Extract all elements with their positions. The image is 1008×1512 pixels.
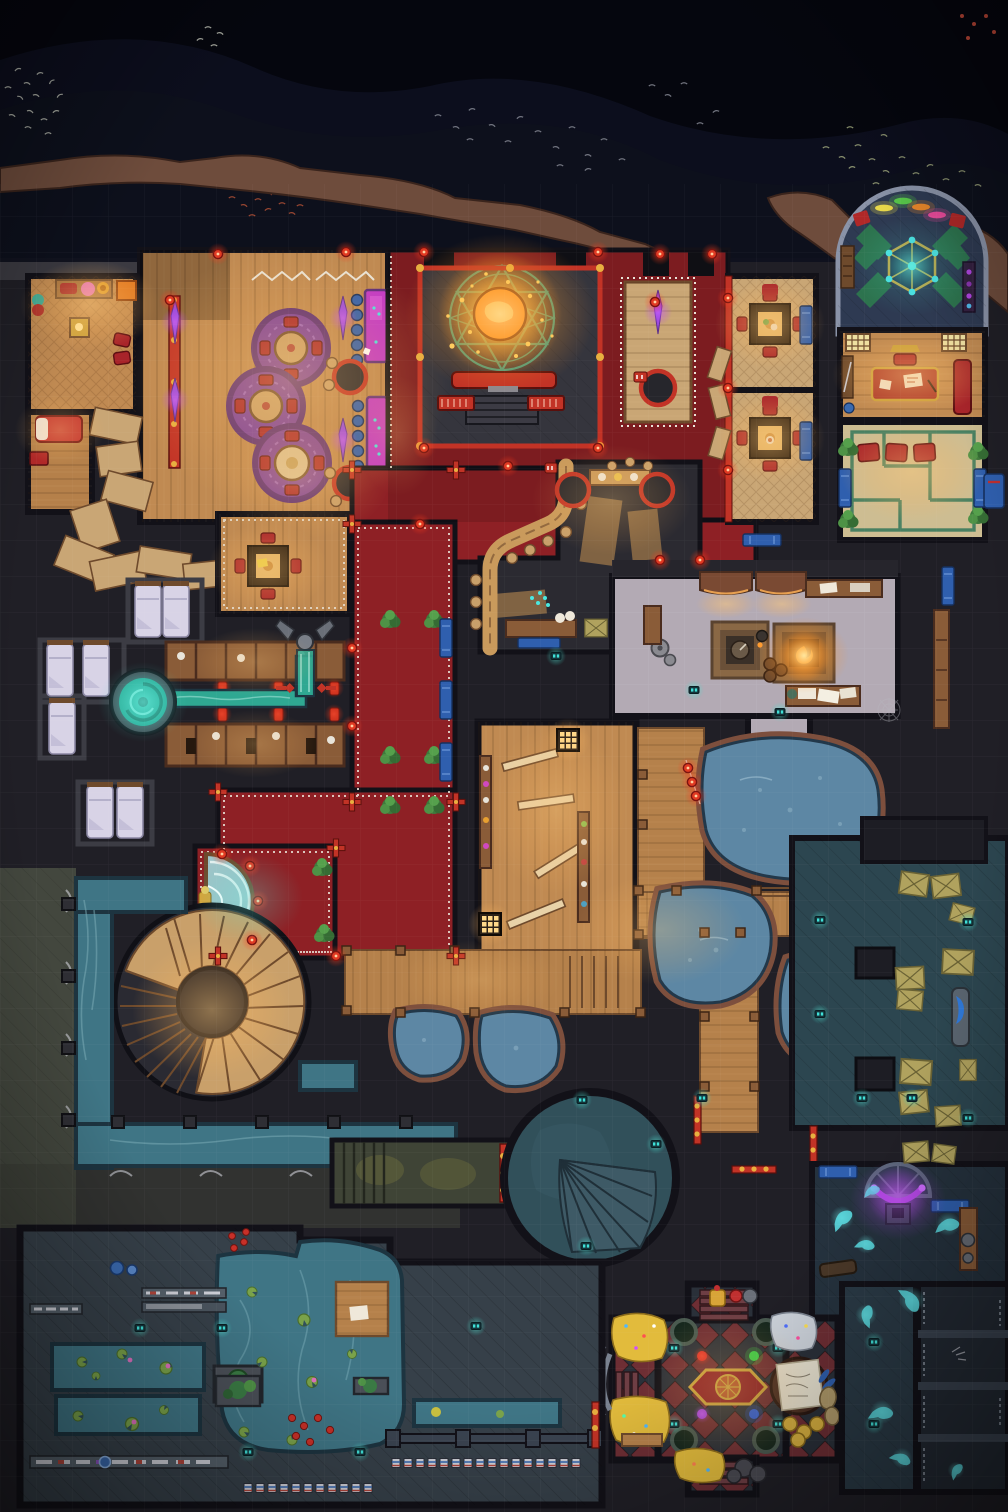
battle-map-svg — [0, 0, 1008, 1512]
battle-map-canvas — [0, 0, 1008, 1512]
vignette — [0, 0, 1008, 1512]
